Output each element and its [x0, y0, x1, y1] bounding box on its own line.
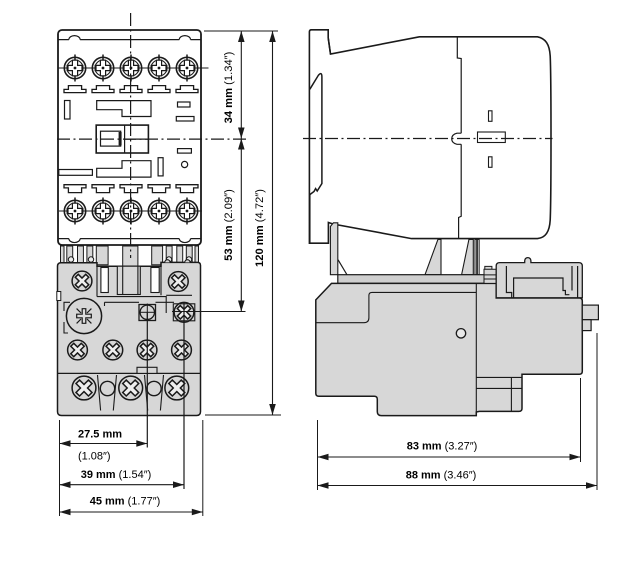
- svg-text:(1.08″): (1.08″): [78, 451, 111, 463]
- svg-text:45 mm (1.77″): 45 mm (1.77″): [90, 496, 161, 508]
- svg-text:27.5 mm: 27.5 mm: [78, 429, 122, 441]
- svg-text:83 mm (3.27″): 83 mm (3.27″): [407, 441, 478, 453]
- svg-text:88 mm (3.46″): 88 mm (3.46″): [406, 470, 477, 482]
- svg-text:53 mm (2.09″): 53 mm (2.09″): [223, 189, 235, 261]
- svg-text:39 mm (1.54″): 39 mm (1.54″): [81, 469, 152, 481]
- svg-text:120 mm (4.72″): 120 mm (4.72″): [254, 189, 266, 267]
- svg-text:34 mm (1.34″): 34 mm (1.34″): [223, 51, 235, 123]
